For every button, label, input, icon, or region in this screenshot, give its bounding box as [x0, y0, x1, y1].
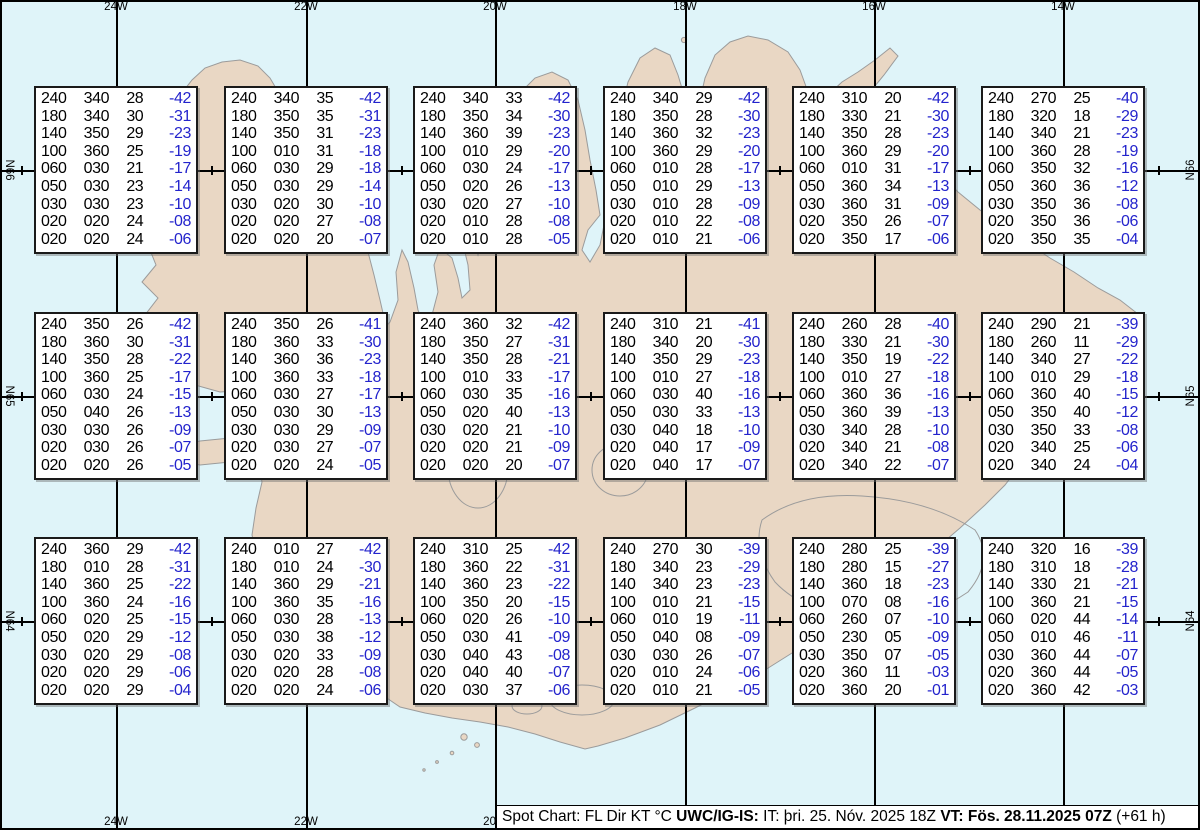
- kt-value: 27: [884, 369, 906, 387]
- temp-value: -07: [919, 213, 949, 231]
- spot-row: 24034035-42: [231, 90, 381, 108]
- kt-value: 28: [1073, 143, 1095, 161]
- dir-value: 010: [274, 559, 304, 577]
- temp-value: -12: [1108, 404, 1138, 422]
- fl-value: 020: [420, 231, 450, 249]
- dir-value: 360: [463, 125, 493, 143]
- dir-value: 330: [1031, 576, 1061, 594]
- spot-box: 24035026-4118036033-3014036036-231003603…: [224, 312, 388, 480]
- temp-value: -07: [540, 664, 570, 682]
- dir-value: 360: [1031, 594, 1061, 612]
- spot-row: 24029021-39: [988, 316, 1138, 334]
- temp-value: -13: [351, 611, 381, 629]
- temp-value: -39: [1108, 316, 1138, 334]
- temp-value: -08: [540, 213, 570, 231]
- kt-value: 20: [884, 682, 906, 700]
- fl-value: 140: [799, 125, 829, 143]
- temp-value: -05: [540, 231, 570, 249]
- spot-row: 02001021-05: [610, 682, 760, 700]
- spot-row: 02035026-07: [799, 213, 949, 231]
- dir-value: 230: [842, 629, 872, 647]
- fl-value: 020: [799, 457, 829, 475]
- dir-value: 020: [274, 457, 304, 475]
- fl-value: 240: [420, 316, 450, 334]
- fl-value: 140: [231, 351, 261, 369]
- fl-value: 030: [420, 647, 450, 665]
- temp-value: -16: [919, 594, 949, 612]
- spot-row: 14035019-22: [799, 351, 949, 369]
- spot-row: 06001028-17: [610, 160, 760, 178]
- spot-row: 10035020-15: [420, 594, 570, 612]
- spot-row: 02002028-08: [231, 664, 381, 682]
- kt-value: 40: [505, 404, 527, 422]
- dir-value: 020: [463, 611, 493, 629]
- spot-row: 03004018-10: [610, 422, 760, 440]
- spot-row: 03035036-08: [988, 196, 1138, 214]
- kt-value: 29: [126, 629, 148, 647]
- spot-row: 05036034-13: [799, 178, 949, 196]
- dir-value: 030: [84, 178, 114, 196]
- temp-value: -13: [540, 404, 570, 422]
- spot-row: 02035017-06: [799, 231, 949, 249]
- dir-value: 360: [1031, 664, 1061, 682]
- fl-value: 030: [41, 422, 71, 440]
- kt-value: 26: [505, 611, 527, 629]
- fl-value: 050: [420, 404, 450, 422]
- kt-value: 25: [1073, 90, 1095, 108]
- temp-value: -07: [161, 439, 191, 457]
- fl-value: 140: [41, 125, 71, 143]
- spot-row: 05035040-12: [988, 404, 1138, 422]
- spot-row: 10036029-20: [799, 143, 949, 161]
- dir-value: 030: [274, 404, 304, 422]
- fl-value: 240: [231, 316, 261, 334]
- temp-value: -09: [351, 647, 381, 665]
- temp-value: -15: [161, 611, 191, 629]
- fl-value: 020: [420, 457, 450, 475]
- dir-value: 340: [842, 457, 872, 475]
- temp-value: -42: [351, 541, 381, 559]
- fl-value: 240: [420, 541, 450, 559]
- temp-value: -15: [161, 386, 191, 404]
- temp-value: -27: [919, 559, 949, 577]
- dir-value: 360: [653, 125, 683, 143]
- spot-row: 03003023-10: [41, 196, 191, 214]
- spot-row: 03035007-05: [799, 647, 949, 665]
- fl-value: 100: [420, 594, 450, 612]
- temp-value: -06: [1108, 213, 1138, 231]
- spot-row: 18034030-31: [41, 108, 191, 126]
- kt-value: 28: [505, 231, 527, 249]
- status-bar: Spot Chart: FL Dir KT °C UWC/IG-IS: IT: …: [496, 805, 1198, 828]
- temp-value: -05: [161, 457, 191, 475]
- kt-value: 41: [505, 629, 527, 647]
- dir-value: 020: [84, 213, 114, 231]
- spot-row: 14036023-22: [420, 576, 570, 594]
- dir-value: 040: [653, 439, 683, 457]
- dir-value: 030: [463, 160, 493, 178]
- fl-value: 180: [41, 334, 71, 352]
- kt-value: 25: [1073, 439, 1095, 457]
- dir-value: 310: [463, 541, 493, 559]
- kt-value: 21: [1073, 594, 1095, 612]
- spot-row: 03004043-08: [420, 647, 570, 665]
- spot-row: 18036033-30: [231, 334, 381, 352]
- dir-value: 330: [842, 108, 872, 126]
- kt-value: 28: [126, 351, 148, 369]
- dir-value: 350: [84, 125, 114, 143]
- dir-value: 030: [84, 439, 114, 457]
- temp-value: -04: [161, 682, 191, 700]
- graticule-tick: [1158, 617, 1160, 626]
- spot-row: 02035036-06: [988, 213, 1138, 231]
- spot-row: 18033021-30: [799, 334, 949, 352]
- fl-value: 140: [420, 125, 450, 143]
- dir-value: 030: [274, 439, 304, 457]
- spot-row: 02002024-06: [41, 231, 191, 249]
- latitude-label-right: N65: [1185, 385, 1197, 406]
- fl-value: 140: [610, 351, 640, 369]
- fl-value: 180: [420, 108, 450, 126]
- kt-value: 46: [1073, 629, 1095, 647]
- graticule-tick: [401, 392, 403, 401]
- spot-box: 24034029-4218035028-3014036032-231003602…: [603, 86, 767, 254]
- dir-value: 030: [274, 178, 304, 196]
- dir-value: 350: [84, 351, 114, 369]
- graticule-tick: [590, 617, 592, 626]
- dir-value: 330: [842, 334, 872, 352]
- temp-value: -22: [1108, 351, 1138, 369]
- dir-value: 350: [842, 213, 872, 231]
- dir-value: 340: [653, 90, 683, 108]
- kt-value: 30: [126, 334, 148, 352]
- spot-row: 02003027-07: [231, 439, 381, 457]
- spot-row: 02002024-05: [231, 457, 381, 475]
- dir-value: 260: [842, 611, 872, 629]
- spot-row: 18032018-29: [988, 108, 1138, 126]
- temp-value: -10: [540, 196, 570, 214]
- kt-value: 30: [316, 196, 338, 214]
- kt-value: 05: [884, 629, 906, 647]
- fl-value: 060: [988, 160, 1018, 178]
- dir-value: 040: [653, 422, 683, 440]
- temp-value: -31: [161, 108, 191, 126]
- graticule-tick: [401, 617, 403, 626]
- spot-row: 14035031-23: [231, 125, 381, 143]
- spot-row: 02002020-07: [231, 231, 381, 249]
- kt-value: 23: [695, 576, 717, 594]
- fl-value: 020: [41, 664, 71, 682]
- dir-value: 350: [274, 125, 304, 143]
- kt-value: 28: [316, 611, 338, 629]
- dir-value: 360: [84, 143, 114, 161]
- spot-row: 05003041-09: [420, 629, 570, 647]
- temp-value: -06: [351, 682, 381, 700]
- spot-row: 10036028-19: [988, 143, 1138, 161]
- temp-value: -08: [161, 213, 191, 231]
- dir-value: 350: [463, 351, 493, 369]
- temp-value: -41: [351, 316, 381, 334]
- fl-value: 030: [41, 647, 71, 665]
- spot-box: 24029021-3918026011-2914034027-221000102…: [981, 312, 1145, 480]
- spot-row: 03036044-07: [988, 647, 1138, 665]
- dir-value: 010: [84, 559, 114, 577]
- fl-value: 020: [231, 682, 261, 700]
- temp-value: -09: [730, 439, 760, 457]
- spot-row: 02036020-01: [799, 682, 949, 700]
- temp-value: -20: [919, 143, 949, 161]
- fl-value: 180: [988, 108, 1018, 126]
- longitude-label-top: 24W: [104, 1, 128, 13]
- spot-row: 03001028-09: [610, 196, 760, 214]
- spot-row: 18001024-30: [231, 559, 381, 577]
- dir-value: 360: [84, 594, 114, 612]
- fl-value: 050: [988, 178, 1018, 196]
- temp-value: -18: [351, 369, 381, 387]
- temp-value: -08: [351, 213, 381, 231]
- temp-value: -05: [1108, 664, 1138, 682]
- spot-row: 05001046-11: [988, 629, 1138, 647]
- kt-value: 25: [126, 369, 148, 387]
- temp-value: -23: [351, 125, 381, 143]
- kt-value: 26: [695, 647, 717, 665]
- temp-value: -42: [540, 316, 570, 334]
- kt-value: 27: [505, 196, 527, 214]
- kt-value: 21: [884, 108, 906, 126]
- kt-value: 33: [1073, 422, 1095, 440]
- temp-value: -04: [1108, 231, 1138, 249]
- fl-value: 050: [610, 178, 640, 196]
- graticule-tick: [211, 166, 213, 175]
- dir-value: 010: [653, 682, 683, 700]
- fl-value: 140: [610, 125, 640, 143]
- kt-value: 29: [126, 647, 148, 665]
- kt-value: 32: [1073, 160, 1095, 178]
- graticule-tick: [969, 166, 971, 175]
- kt-value: 43: [505, 647, 527, 665]
- temp-value: -42: [161, 541, 191, 559]
- longitude-label-top: 14W: [1051, 1, 1075, 13]
- temp-value: -23: [1108, 125, 1138, 143]
- dir-value: 350: [1031, 404, 1061, 422]
- fl-value: 020: [988, 457, 1018, 475]
- kt-value: 44: [1073, 664, 1095, 682]
- kt-value: 25: [126, 611, 148, 629]
- temp-value: -31: [161, 334, 191, 352]
- kt-value: 32: [505, 316, 527, 334]
- temp-value: -40: [919, 316, 949, 334]
- dir-value: 340: [274, 90, 304, 108]
- kt-value: 29: [695, 178, 717, 196]
- spot-row: 02004017-07: [610, 457, 760, 475]
- fl-value: 020: [41, 213, 71, 231]
- spot-row: 24035026-42: [41, 316, 191, 334]
- spot-row: 03003029-09: [231, 422, 381, 440]
- spot-row: 18034023-29: [610, 559, 760, 577]
- dir-value: 360: [274, 594, 304, 612]
- dir-value: 360: [653, 143, 683, 161]
- spot-box: 24027030-3918034023-2914034023-231000102…: [603, 537, 767, 705]
- temp-value: -15: [1108, 594, 1138, 612]
- dir-value: 340: [842, 439, 872, 457]
- dir-value: 030: [653, 404, 683, 422]
- graticule-tick: [1158, 392, 1160, 401]
- temp-value: -42: [161, 316, 191, 334]
- dir-value: 040: [84, 404, 114, 422]
- spot-row: 24035026-41: [231, 316, 381, 334]
- kt-value: 25: [884, 541, 906, 559]
- dir-value: 030: [463, 629, 493, 647]
- spot-row: 10001031-18: [231, 143, 381, 161]
- spot-row: 14036036-23: [231, 351, 381, 369]
- spot-row: 18035027-31: [420, 334, 570, 352]
- temp-value: -17: [161, 160, 191, 178]
- fl-value: 050: [231, 178, 261, 196]
- dir-value: 340: [842, 422, 872, 440]
- fl-value: 180: [420, 334, 450, 352]
- dir-value: 350: [463, 594, 493, 612]
- graticule-tick: [590, 392, 592, 401]
- spot-row: 18035034-30: [420, 108, 570, 126]
- dir-value: 010: [653, 196, 683, 214]
- temp-value: -08: [540, 647, 570, 665]
- kt-value: 37: [505, 682, 527, 700]
- kt-value: 36: [1073, 196, 1095, 214]
- temp-value: -42: [730, 90, 760, 108]
- spot-row: 06003021-17: [41, 160, 191, 178]
- kt-value: 36: [1073, 213, 1095, 231]
- dir-value: 030: [84, 386, 114, 404]
- dir-value: 020: [84, 629, 114, 647]
- spot-box: 24034033-4218035034-3014036039-231000102…: [413, 86, 577, 254]
- temp-value: -12: [161, 629, 191, 647]
- fl-value: 030: [420, 422, 450, 440]
- temp-value: -30: [730, 108, 760, 126]
- kt-value: 44: [1073, 611, 1095, 629]
- temp-value: -15: [540, 594, 570, 612]
- dir-value: 290: [1031, 316, 1061, 334]
- temp-value: -10: [540, 611, 570, 629]
- temp-value: -05: [351, 457, 381, 475]
- temp-value: -29: [730, 559, 760, 577]
- dir-value: 360: [842, 178, 872, 196]
- spot-box: 24034028-4218034030-3114035029-231003602…: [34, 86, 198, 254]
- fl-value: 030: [41, 196, 71, 214]
- fl-value: 180: [41, 559, 71, 577]
- kt-value: 29: [316, 178, 338, 196]
- temp-value: -10: [919, 611, 949, 629]
- fl-value: 100: [420, 369, 450, 387]
- kt-value: 29: [505, 143, 527, 161]
- temp-value: -11: [1108, 629, 1138, 647]
- dir-value: 350: [274, 316, 304, 334]
- fl-value: 060: [231, 611, 261, 629]
- fl-value: 020: [420, 664, 450, 682]
- temp-value: -07: [540, 457, 570, 475]
- fl-value: 050: [988, 404, 1018, 422]
- kt-value: 17: [695, 439, 717, 457]
- spot-row: 06003027-17: [231, 386, 381, 404]
- spot-row: 24036029-42: [41, 541, 191, 559]
- fl-value: 060: [231, 386, 261, 404]
- temp-value: -15: [1108, 386, 1138, 404]
- kt-value: 22: [884, 457, 906, 475]
- fl-value: 140: [799, 351, 829, 369]
- temp-value: -06: [161, 664, 191, 682]
- kt-value: 40: [505, 664, 527, 682]
- kt-value: 33: [505, 90, 527, 108]
- fl-value: 020: [799, 231, 829, 249]
- temp-value: -42: [351, 90, 381, 108]
- dir-value: 320: [1031, 108, 1061, 126]
- fl-value: 030: [988, 422, 1018, 440]
- fl-value: 060: [610, 386, 640, 404]
- spot-row: 06003035-16: [420, 386, 570, 404]
- spot-row: 14036025-22: [41, 576, 191, 594]
- temp-value: -06: [161, 231, 191, 249]
- fl-value: 180: [988, 559, 1018, 577]
- dir-value: 020: [84, 647, 114, 665]
- graticule-tick: [969, 392, 971, 401]
- kt-value: 35: [1073, 231, 1095, 249]
- kt-value: 21: [126, 160, 148, 178]
- temp-value: -05: [730, 682, 760, 700]
- dir-value: 030: [84, 160, 114, 178]
- spot-row: 06036036-16: [799, 386, 949, 404]
- spot-row: 06003024-15: [41, 386, 191, 404]
- fl-value: 180: [420, 559, 450, 577]
- kt-value: 33: [316, 334, 338, 352]
- spot-row: 24027025-40: [988, 90, 1138, 108]
- spot-row: 02034022-07: [799, 457, 949, 475]
- fl-value: 180: [231, 559, 261, 577]
- dir-value: 310: [1031, 559, 1061, 577]
- temp-value: -01: [919, 682, 949, 700]
- dir-value: 350: [84, 316, 114, 334]
- temp-value: -13: [351, 404, 381, 422]
- kt-value: 15: [884, 559, 906, 577]
- graticule-tick: [1158, 166, 1160, 175]
- temp-value: -17: [161, 369, 191, 387]
- dir-value: 320: [1031, 541, 1061, 559]
- graticule-tick: [21, 392, 23, 401]
- dir-value: 030: [653, 386, 683, 404]
- status-segment: VT: Fös. 28.11.2025 07Z: [940, 808, 1111, 826]
- kt-value: 26: [884, 213, 906, 231]
- spot-row: 10001029-20: [420, 143, 570, 161]
- temp-value: -09: [919, 196, 949, 214]
- temp-value: -17: [351, 386, 381, 404]
- dir-value: 010: [274, 143, 304, 161]
- spot-row: 06002026-10: [420, 611, 570, 629]
- spot-row: 14036029-21: [231, 576, 381, 594]
- temp-value: -22: [161, 351, 191, 369]
- spot-row: 24001027-42: [231, 541, 381, 559]
- fl-value: 140: [420, 576, 450, 594]
- kt-value: 28: [126, 559, 148, 577]
- spot-row: 06003028-13: [231, 611, 381, 629]
- spot-row: 03002021-10: [420, 422, 570, 440]
- fl-value: 060: [799, 160, 829, 178]
- dir-value: 280: [842, 559, 872, 577]
- kt-value: 29: [126, 682, 148, 700]
- temp-value: -42: [540, 90, 570, 108]
- kt-value: 18: [1073, 559, 1095, 577]
- temp-value: -06: [919, 231, 949, 249]
- kt-value: 28: [695, 160, 717, 178]
- dir-value: 010: [653, 231, 683, 249]
- spot-row: 14034027-22: [988, 351, 1138, 369]
